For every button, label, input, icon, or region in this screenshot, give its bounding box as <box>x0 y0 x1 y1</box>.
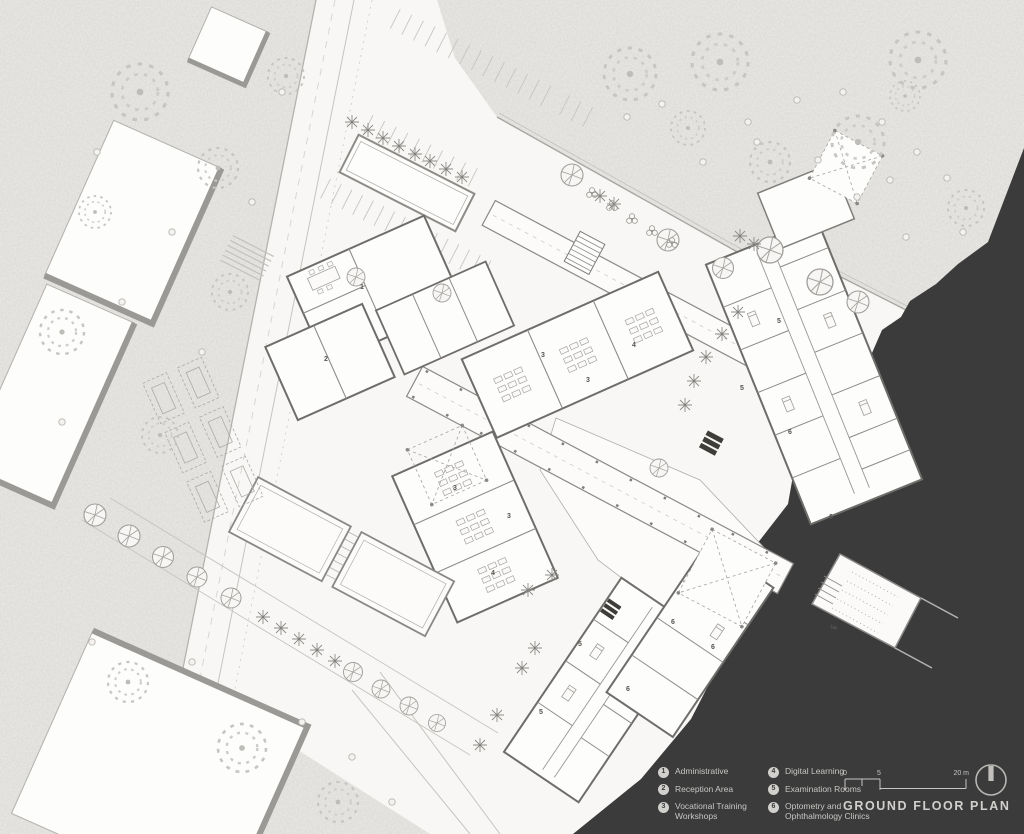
legend-item-label: Reception Area <box>675 784 733 796</box>
legend-item: 3Vocational Training Workshops <box>658 801 750 821</box>
scale-tick-20m: 20 m <box>953 770 969 777</box>
legend-number-badge: 6 <box>768 802 779 813</box>
room-number-label: 5 <box>578 641 582 648</box>
legend-item-label: Vocational Training Workshops <box>675 801 750 821</box>
legend-item-label: Administrative <box>675 766 728 778</box>
legend-number-badge: 1 <box>658 767 669 778</box>
scale-bar: 0 5 20 m <box>842 766 974 796</box>
scale-tick-5: 5 <box>877 770 881 777</box>
room-number-label: 5 <box>539 709 543 716</box>
legend-number-badge: 5 <box>768 784 779 795</box>
room-number-label: 6 <box>671 619 675 626</box>
north-arrow-icon <box>972 760 1012 800</box>
plan-title: GROUND FLOOR PLAN <box>843 799 1010 813</box>
room-number-label: 3 <box>586 377 590 384</box>
legend-number-badge: 3 <box>658 802 669 813</box>
room-number-label: 2 <box>324 356 328 363</box>
scale-bar-line <box>845 779 966 790</box>
room-number-label: 4 <box>632 342 636 349</box>
legend-item-label: Digital Learning <box>785 766 844 778</box>
legend-number-badge: 2 <box>658 784 669 795</box>
room-number-label: 5 <box>740 385 744 392</box>
floor-plan-page: 12334334556655666UP 1Administrative2Rece… <box>0 0 1024 834</box>
room-number-label: 6 <box>788 429 792 436</box>
room-number-label: 5 <box>777 318 781 325</box>
legend-column-1: 1Administrative2Reception Area3Vocationa… <box>658 766 750 827</box>
floor-plan-drawing: 12334334556655666UP <box>0 0 1024 834</box>
room-number-label: 6 <box>626 686 630 693</box>
room-number-label: 3 <box>453 485 457 492</box>
room-number-label: 1 <box>360 284 364 291</box>
legend-item: 2Reception Area <box>658 784 750 796</box>
legend-number-badge: 4 <box>768 767 779 778</box>
scale-tick-0: 0 <box>843 770 847 777</box>
room-number-label: 3 <box>507 513 511 520</box>
room-number-label: 6 <box>829 514 833 521</box>
room-number-label: 3 <box>541 352 545 359</box>
tree-icon <box>561 164 583 186</box>
room-number-label: 6 <box>711 644 715 651</box>
legend-item: 1Administrative <box>658 766 750 778</box>
room-number-label: 4 <box>491 570 495 577</box>
